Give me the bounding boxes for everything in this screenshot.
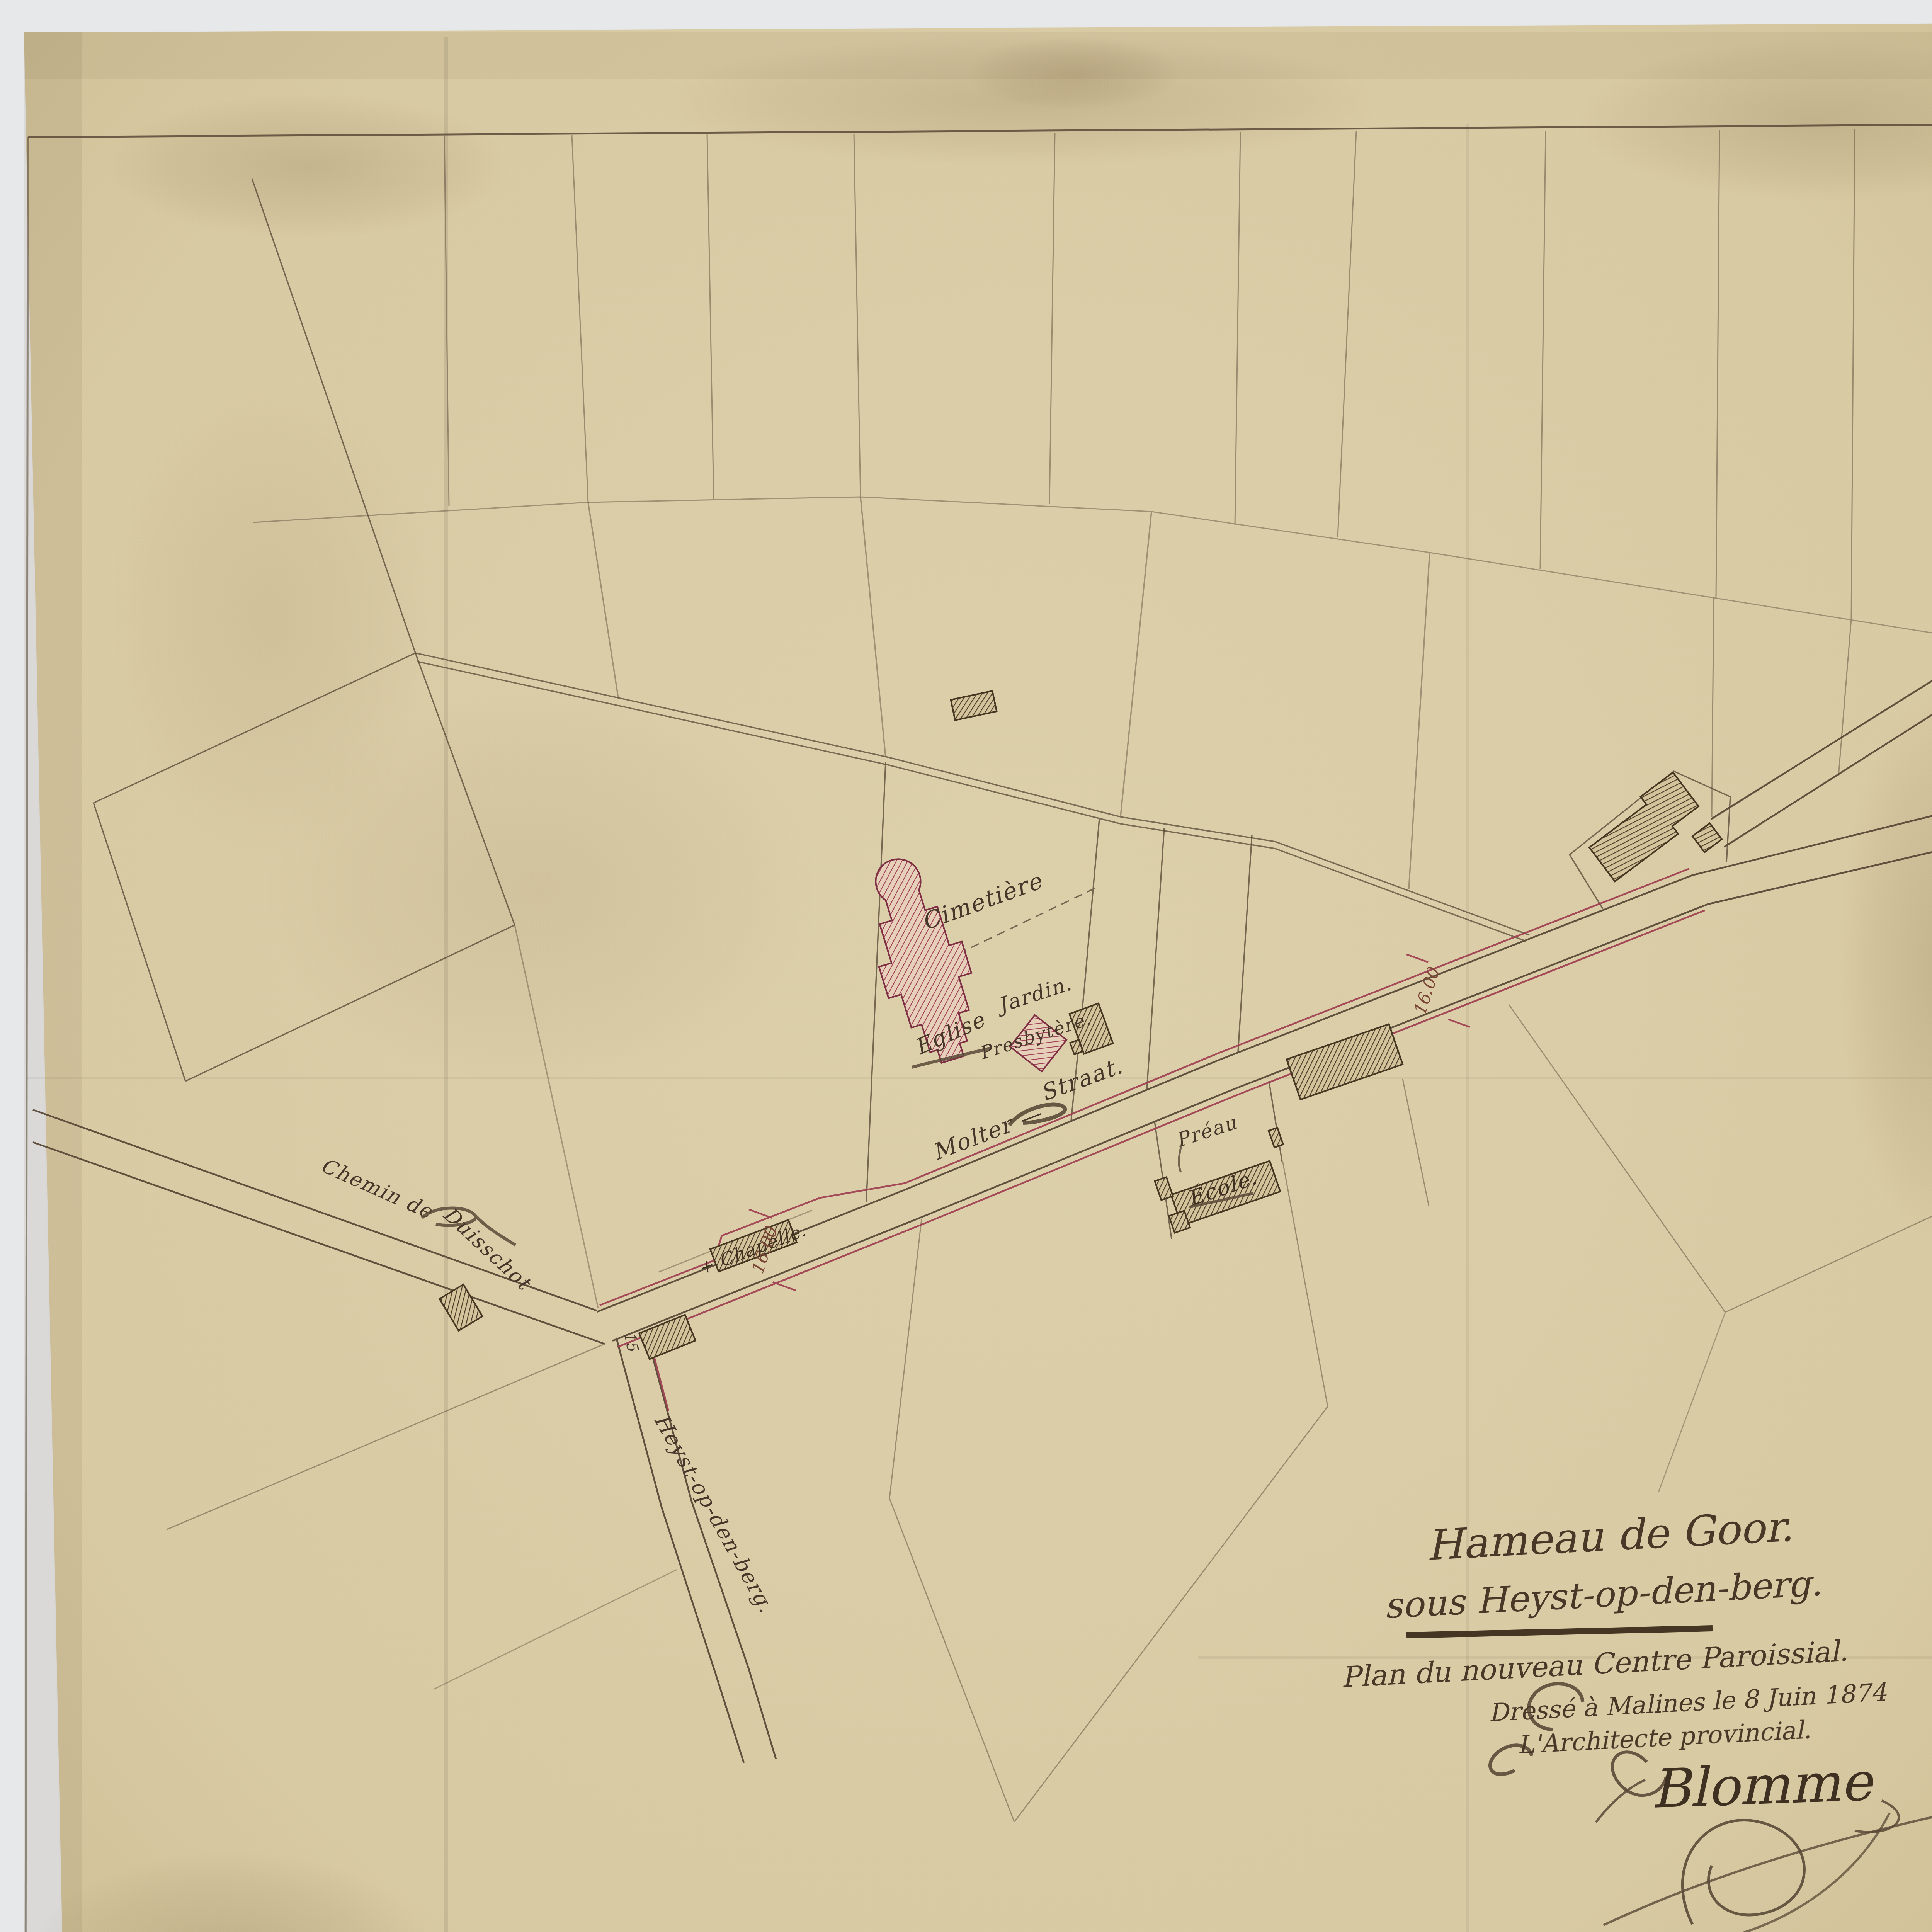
scanned-plan-page: Cimetière Jardin. Eglise Presbytère. Mol…: [0, 0, 1932, 1932]
plan-scan: Cimetière Jardin. Eglise Presbytère. Mol…: [0, 0, 1932, 1932]
signature-text: Blomme: [1650, 1750, 1876, 1820]
fold-crease-horizontal: [27, 1077, 1932, 1079]
